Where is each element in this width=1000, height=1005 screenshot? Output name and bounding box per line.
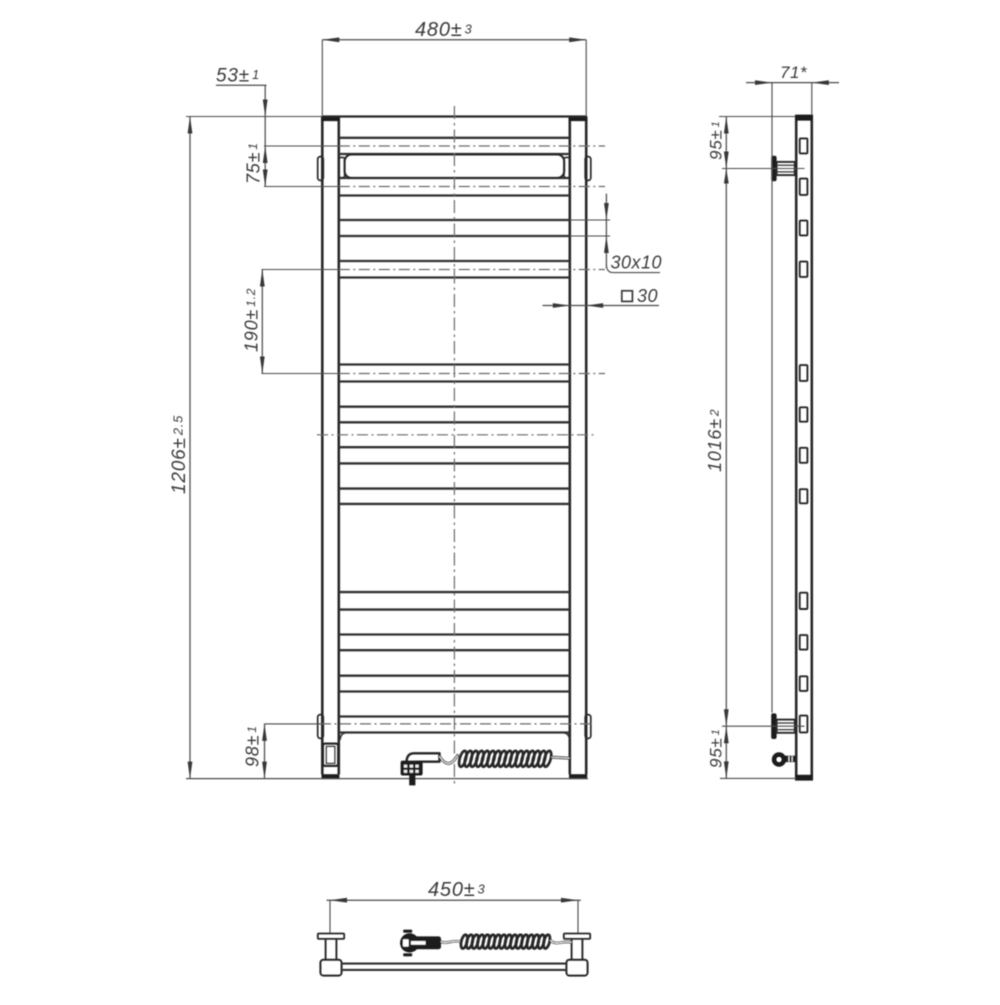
svg-text:71*: 71*	[780, 63, 808, 82]
svg-text:1016±2: 1016±2	[705, 409, 725, 472]
svg-text:30x10: 30x10	[611, 253, 663, 273]
svg-text:30: 30	[637, 286, 658, 306]
